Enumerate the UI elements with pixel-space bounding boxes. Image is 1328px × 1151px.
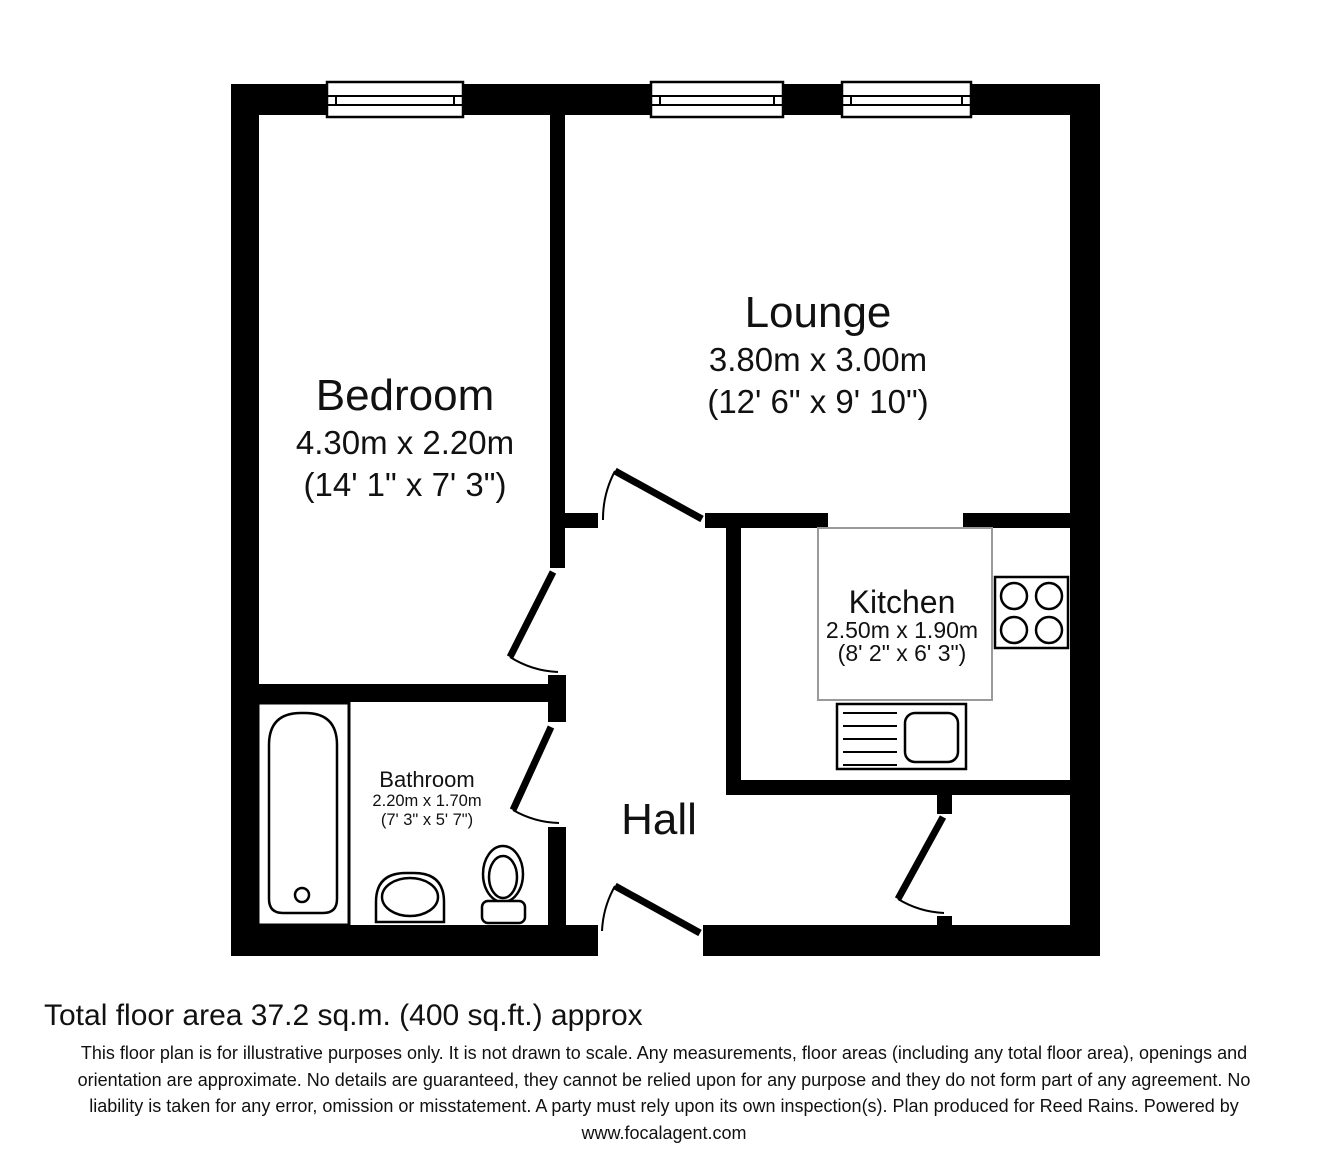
stub-cupboard-bottom [937,916,952,925]
lounge-label-block: Lounge 3.80m x 3.00m (12' 6" x 9' 10") [707,287,928,423]
door-bathroom [513,727,559,823]
wall-bedroom-lounge [550,115,565,568]
toilet [482,846,525,923]
bathtub [258,703,349,925]
hob-ring [1001,617,1027,643]
disclaimer-line: This floor plan is for illustrative purp… [0,1040,1328,1067]
window-lounge-left [651,82,783,117]
wall-outer-left [231,84,259,956]
sink-basin [905,713,958,762]
wall-kitchen-bottom [726,780,1070,795]
door-lounge [603,471,702,520]
window-bedroom [327,82,463,117]
wall-lounge-kitchen-left [705,513,828,528]
kitchen-dim-metric: 2.50m x 1.90m [826,619,978,642]
disclaimer-line: orientation are approximate. No details … [0,1067,1328,1094]
door-bedroom [510,572,558,672]
bathroom-sink [376,873,444,922]
kitchen-dim-imperial: (8' 2" x 6' 3") [826,642,978,665]
bedroom-dim-imperial: (14' 1" x 7' 3") [296,464,514,506]
disclaimer-website: www.focalagent.com [0,1120,1328,1147]
bedroom-dim-metric: 4.30m x 2.20m [296,422,514,464]
hall-label: Hall [621,797,697,843]
wall-bathroom-top [259,684,548,702]
hob-ring [1036,583,1062,609]
toilet-bowl [489,856,517,898]
bathroom-label-block: Bathroom 2.20m x 1.70m (7' 3" x 5' 7") [372,768,481,829]
hob [995,577,1068,648]
bedroom-label-block: Bedroom 4.30m x 2.20m (14' 1" x 7' 3") [296,370,514,506]
stub-cupboard-top [937,795,952,814]
disclaimer-line: liability is taken for any error, omissi… [0,1093,1328,1120]
kitchen-label-block: Kitchen 2.50m x 1.90m (8' 2" x 6' 3") [826,585,978,665]
wall-bathroom-hall-lower [548,827,566,925]
kitchen-name: Kitchen [826,585,978,619]
window-lounge-right [842,82,971,117]
bathroom-dim-metric: 2.20m x 1.70m [372,792,481,811]
wall-bathroom-jamb-upper [548,675,566,722]
bedroom-name: Bedroom [296,370,514,422]
lounge-dim-metric: 3.80m x 3.00m [707,339,928,381]
toilet-cistern [482,901,525,923]
wall-kitchen-hall [726,528,741,781]
door-entry [602,886,700,933]
disclaimer: This floor plan is for illustrative purp… [0,1040,1328,1146]
wall-outer-right [1070,84,1100,956]
wall-lounge-door-stub [565,513,598,528]
wall-outer-bottom-left [231,925,598,956]
bathroom-dim-imperial: (7' 3" x 5' 7") [372,811,481,830]
lounge-name: Lounge [707,287,928,339]
bathroom-name: Bathroom [372,768,481,792]
bath-drain [295,888,309,902]
lounge-dim-imperial: (12' 6" x 9' 10") [707,381,928,423]
door-cupboard [898,817,944,913]
wall-outer-bottom-right [703,925,1100,956]
floorplan-canvas: Bedroom 4.30m x 2.20m (14' 1" x 7' 3") L… [0,0,1328,1151]
hob-ring [1001,583,1027,609]
total-floor-area: Total floor area 37.2 sq.m. (400 sq.ft.)… [44,999,643,1033]
hob-ring [1036,617,1062,643]
wall-lounge-kitchen-right [963,513,1070,528]
kitchen-sink [837,704,966,769]
